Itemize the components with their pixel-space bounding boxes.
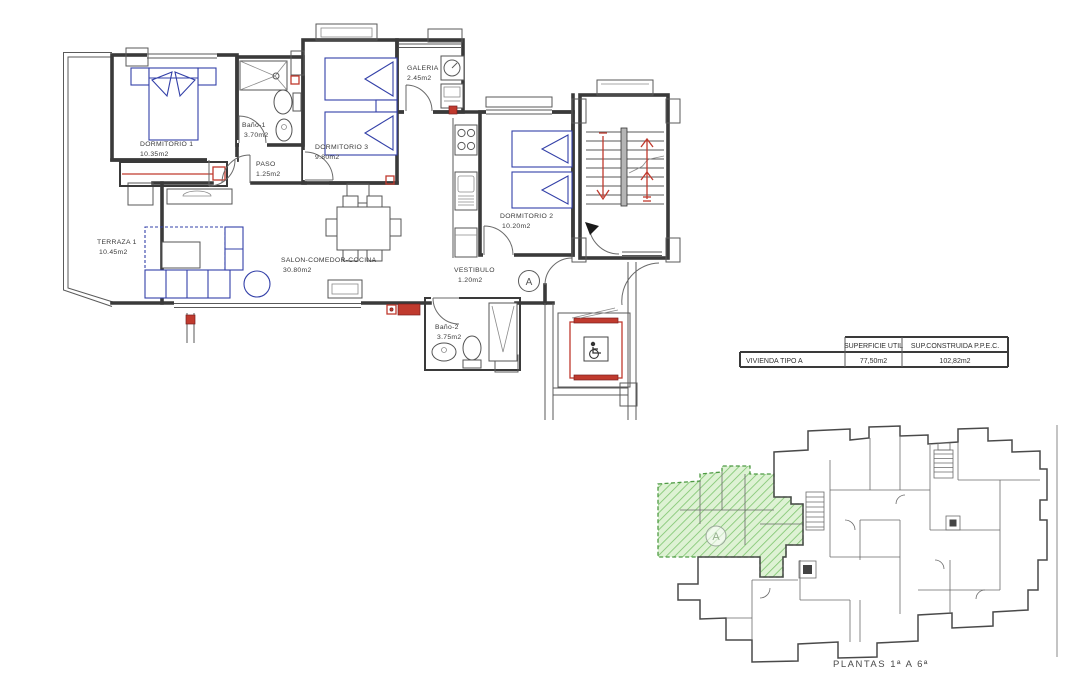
cabinet-south-wall	[328, 280, 362, 298]
table-header-superficie-util: SUPERFICIE UTIL	[844, 343, 903, 350]
room-label-vestibulo-area: 1.20m2	[458, 277, 482, 284]
room-label-vestibulo-name: VESTIBULO	[454, 267, 495, 274]
wheelchair-icon	[584, 337, 608, 361]
room-label-terraza-1-area: 10.45m2	[99, 249, 128, 256]
room-label-dormitorio-2-area: 10.20m2	[502, 223, 531, 230]
room-label-dormitorio-3-name: DORMITORIO 3	[315, 144, 368, 151]
room-label-paso-area: 1.25m2	[256, 171, 280, 178]
room-label-galeria-name: GALERIA	[407, 65, 439, 72]
keyplan-caption: PLANTAS 1ª A 6ª	[833, 659, 929, 670]
room-label-dormitorio-1-area: 10.35m2	[140, 151, 169, 158]
room-label-terraza-1-name: TERRAZA 1	[97, 239, 137, 246]
kitchen-counter	[453, 118, 477, 258]
keyplan-unit-marker: A	[706, 526, 726, 546]
room-label-salon-name: SALON-COMEDOR-COCINA	[281, 257, 377, 264]
blueprint-sheet: DORMITORIO 1 10.35m2 Baño-1 3.70m2 DORMI…	[0, 0, 1070, 682]
window-dorm1	[147, 51, 217, 59]
keyplan-unit-marker-letter: A	[712, 531, 720, 543]
room-label-bano-1-area: 3.70m2	[244, 132, 268, 139]
floorplan-drawing: DORMITORIO 1 10.35m2 Baño-1 3.70m2 DORMI…	[0, 0, 1070, 682]
room-label-salon-area: 30.80m2	[283, 267, 312, 274]
room-label-paso-name: PASO	[256, 161, 276, 168]
room-label-dormitorio-2-name: DORMITORIO 2	[500, 213, 553, 220]
table-header-sup-construida: SUP.CONSTRUIDA P.P.E.C.	[911, 343, 999, 350]
table-value-sup-construida: 102,82m2	[939, 358, 970, 365]
table-value-superficie-util: 77,50m2	[860, 358, 887, 365]
room-label-dormitorio-3-area: 9.80m2	[315, 154, 339, 161]
room-label-galeria-area: 2.45m2	[407, 75, 431, 82]
room-label-dormitorio-1-name: DORMITORIO 1	[140, 141, 193, 148]
room-label-bano-1-name: Baño-1	[242, 122, 266, 129]
unit-marker-letter: A	[526, 277, 533, 288]
window-salon	[174, 300, 361, 310]
table-row-label: VIVIENDA TIPO A	[746, 358, 803, 365]
room-label-bano-2-area: 3.75m2	[437, 334, 461, 341]
room-label-bano-2-name: Baño-2	[435, 324, 459, 331]
